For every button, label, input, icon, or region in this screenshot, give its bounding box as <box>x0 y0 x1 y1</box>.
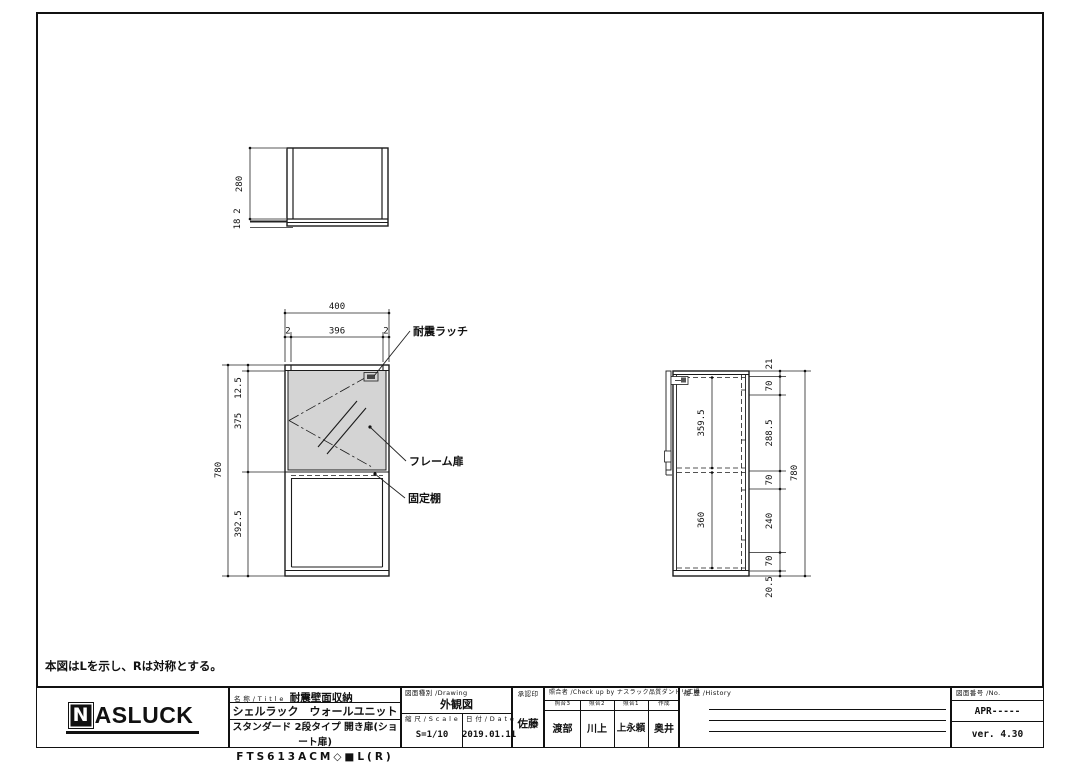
check-col2-name: 川上 <box>580 720 614 735</box>
check-col3-name: 上永頼 <box>614 720 648 734</box>
date-label: 日 付 / D a t e <box>466 716 514 723</box>
drawing-number-cell: 図面番号 /No. APR----- ver. 4.30 <box>950 688 1043 747</box>
history-line-1 <box>709 709 946 710</box>
dim-front-width: 400 <box>329 302 345 312</box>
drawing-type-value: 外観図 <box>402 696 511 712</box>
history-line-2 <box>709 720 946 721</box>
approval-cell: 承認印 佐藤 <box>511 688 543 747</box>
dim-topview-plate: 18 <box>233 219 243 230</box>
name-row34: スタンダード 2段タイプ 開き扉(ショート扉) FTS613ACM◇■L(R) <box>230 719 400 747</box>
date-value: 2019.01.11 <box>462 730 513 740</box>
dim-front-width-center: 396 <box>329 327 345 337</box>
dim-front-seg-bottom: 392.5 <box>234 510 244 537</box>
title-block: N ASLUCK 名 称 / T i t l e 耐震壁面収納 シェルラック ウ… <box>37 686 1043 747</box>
nasluck-logo: N ASLUCK <box>66 702 200 734</box>
label-seismic-latch: 耐震ラッチ <box>413 324 468 338</box>
check-col4-name: 奥井 <box>648 720 680 735</box>
dim-front-seg-top: 12.5 <box>234 377 244 399</box>
check-col1-label: 照合3 <box>545 702 580 708</box>
dim-topview-gap: 2 <box>233 208 243 213</box>
dim-side-chain-6: 70 <box>765 556 775 567</box>
history-label: 履 歴 /History <box>684 690 731 697</box>
approval-label: 承認印 <box>513 691 543 698</box>
frame-door-panel <box>288 371 386 471</box>
side-view <box>665 371 750 576</box>
dim-front-height: 780 <box>214 462 224 478</box>
logo-text: ASLUCK <box>95 702 194 729</box>
check-col4-label: 作成 <box>648 702 680 708</box>
dim-side-chain-3: 288.5 <box>765 419 775 446</box>
dim-side-inner-top: 359.5 <box>697 409 707 436</box>
top-view <box>287 148 388 226</box>
dim-side-chain-7: 20.5 <box>765 576 775 598</box>
label-frame-door: フレーム扉 <box>409 454 464 468</box>
logo-cell: N ASLUCK <box>37 688 228 747</box>
name-row1: 名 称 / T i t l e 耐震壁面収納 <box>230 688 400 702</box>
front-view <box>285 365 389 576</box>
dim-front-width-right: 2 <box>383 327 388 337</box>
check-col1-name: 渡部 <box>545 720 580 735</box>
version-value: ver. 4.30 <box>952 729 1043 740</box>
dim-side-inner-bottom: 360 <box>697 512 707 528</box>
drawing-info-cell: 図面種別 /Drawing 外観図 縮 尺 / S c a l e S=1/10… <box>400 688 511 747</box>
dim-side-chain-4: 70 <box>765 475 775 486</box>
scale-label: 縮 尺 / S c a l e <box>405 716 458 723</box>
product-type: スタンダード 2段タイプ 開き扉(ショート扉) <box>230 720 400 750</box>
scale-value: S=1/10 <box>402 730 462 740</box>
product-name-cell: 名 称 / T i t l e 耐震壁面収納 シェルラック ウォールユニット ス… <box>228 688 400 747</box>
check-col2-label: 照合2 <box>580 702 614 708</box>
history-cell: 履 歴 /History <box>678 688 950 747</box>
model-number: FTS613ACM◇■L(R) <box>230 750 400 764</box>
mirror-note: 本図はLを示し、Rは対称とする。 <box>45 659 222 673</box>
drawing-number-label: 図面番号 /No. <box>956 690 1001 697</box>
dim-front-width-left: 2 <box>285 327 290 337</box>
approval-name: 佐藤 <box>513 716 543 731</box>
dim-side-chain-1: 21 <box>765 359 775 370</box>
product-series: シェルラック ウォールユニット <box>230 702 400 719</box>
check-col3-label: 照合1 <box>614 702 648 708</box>
logo-n-box: N <box>68 702 94 729</box>
dim-topview-height: 280 <box>235 176 245 192</box>
drawing-sheet: 280 2 18 <box>0 0 1080 764</box>
dim-side-chain-5: 240 <box>765 513 775 529</box>
label-fixed-shelf: 固定棚 <box>408 491 441 505</box>
drawing-number-value: APR----- <box>952 706 1043 717</box>
sheet-border <box>37 13 1043 747</box>
check-cell: 照合者 /Check up by ナスラック品質ダンドリ工場 照合3 照合2 照… <box>543 688 678 747</box>
dim-side-chain-2: 70 <box>765 381 775 392</box>
dim-side-height: 780 <box>790 465 800 481</box>
history-line-3 <box>709 731 946 732</box>
hinge-symbol <box>665 451 672 462</box>
dim-front-seg-door: 375 <box>234 413 244 429</box>
